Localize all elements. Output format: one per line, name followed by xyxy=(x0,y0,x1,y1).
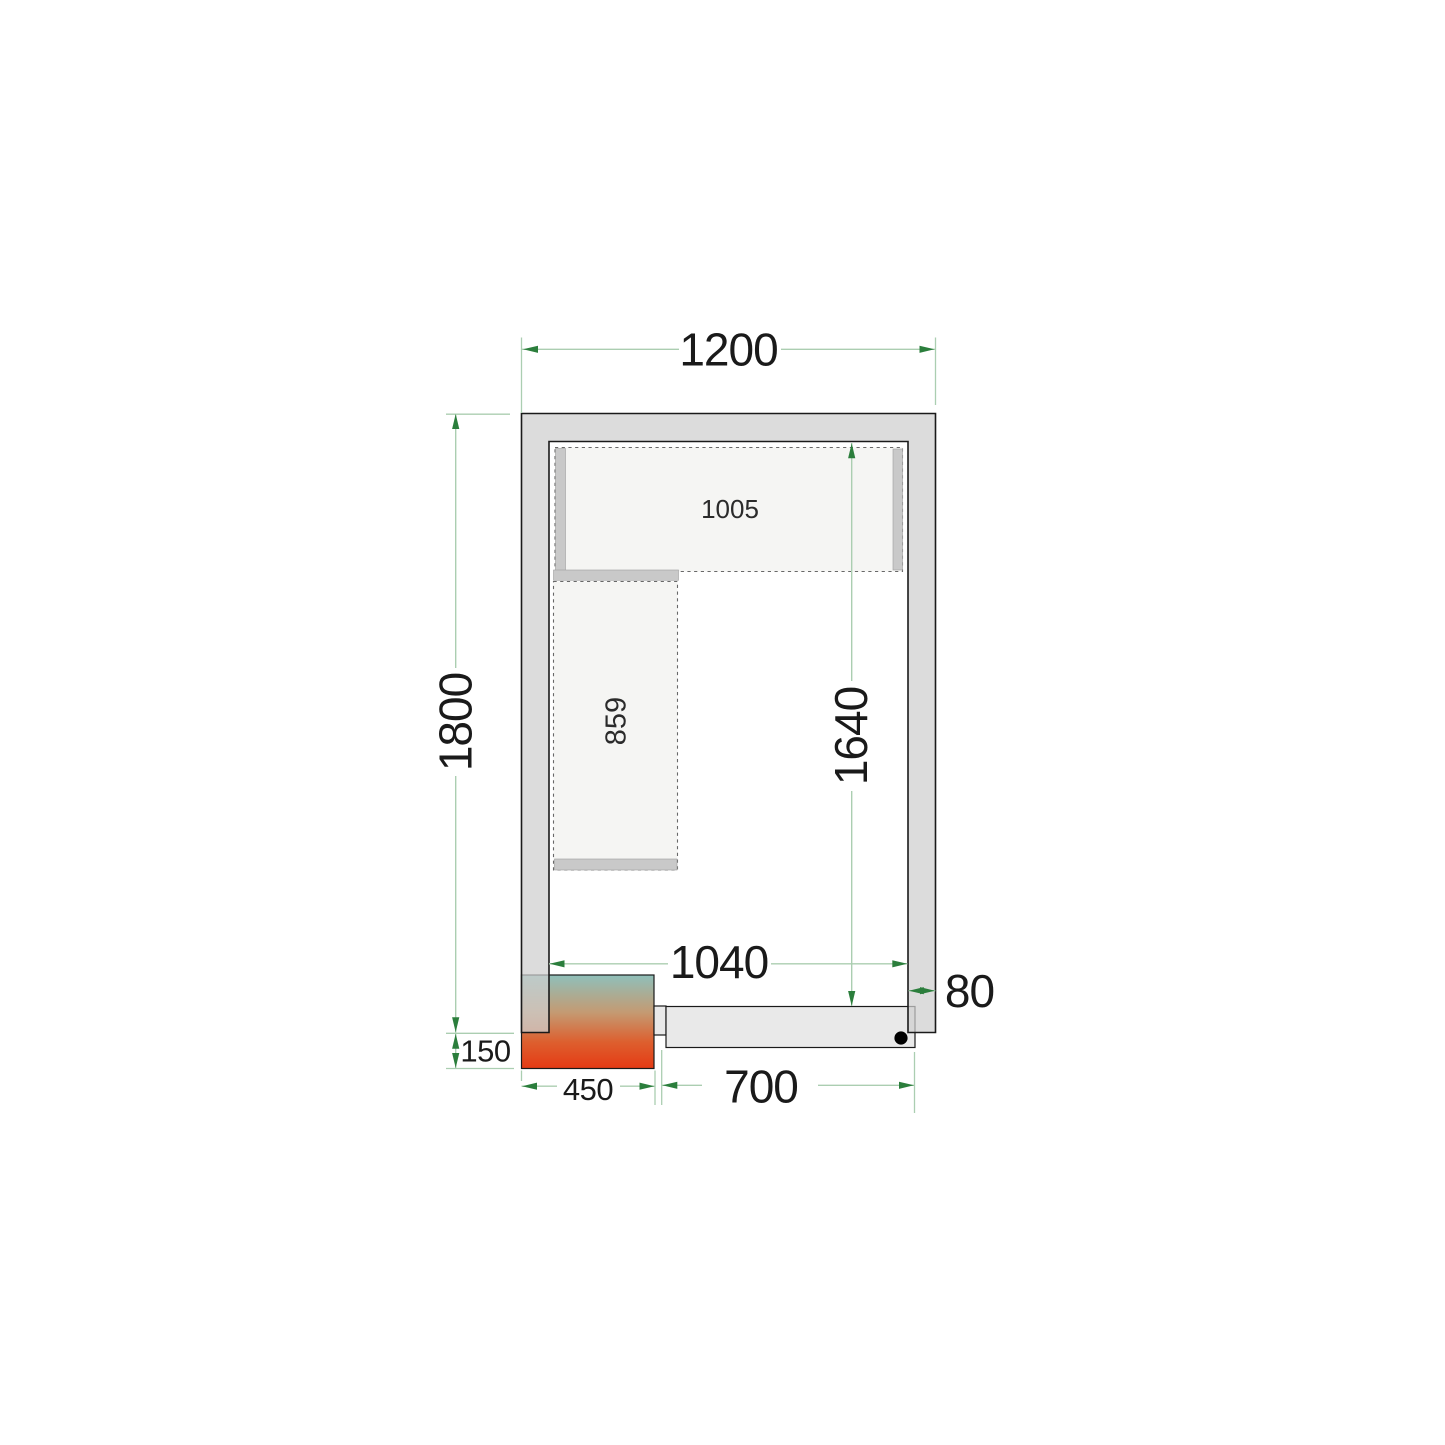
dimension-door-opening: 700 xyxy=(662,1050,915,1113)
top-shelf-length-label: 1005 xyxy=(701,494,759,524)
arrow-up-icon xyxy=(452,1034,459,1049)
door-hinge-dot xyxy=(894,1031,907,1044)
outer-depth-value: 1800 xyxy=(430,673,482,771)
arrow-up-icon xyxy=(452,414,459,429)
unit-width-value: 450 xyxy=(563,1072,613,1107)
arrow-down-icon xyxy=(452,1053,459,1068)
inner-width-value: 1040 xyxy=(670,936,768,988)
top-shelf-corner-bracket xyxy=(554,570,679,580)
door-opening-value: 700 xyxy=(724,1061,798,1113)
left-shelf: 859 xyxy=(554,582,678,871)
dimension-unit-protrusion: 150 xyxy=(446,1033,514,1068)
outer-width-value: 1200 xyxy=(679,324,777,376)
arrow-left-icon xyxy=(523,346,538,353)
arrow-left-icon xyxy=(662,1082,677,1089)
top-shelf-right-bracket xyxy=(893,449,903,570)
arrow-right-icon xyxy=(640,1083,655,1090)
arrow-right-icon xyxy=(899,1082,914,1089)
arrow-right-icon xyxy=(920,346,935,353)
left-shelf-bottom-bracket xyxy=(555,859,678,870)
dimension-outer-width: 1200 xyxy=(522,324,936,414)
dimension-outer-depth: 1800 xyxy=(430,414,511,1033)
dimension-unit-width: 450 xyxy=(522,1071,656,1108)
inner-depth-value: 1640 xyxy=(825,687,877,785)
cold-room-plan-page: 1005 859 1200 1800 xyxy=(0,0,1445,1445)
arrow-down-icon xyxy=(848,991,855,1006)
top-shelf-left-bracket xyxy=(556,449,566,571)
door-jamb xyxy=(654,1006,666,1035)
arrow-right-icon xyxy=(892,960,907,967)
cold-room-plan-drawing: 1005 859 1200 1800 xyxy=(0,0,1445,1445)
top-shelf: 1005 xyxy=(554,448,903,581)
door-assembly xyxy=(654,1006,915,1048)
arrow-down-icon xyxy=(452,1017,459,1032)
arrow-left-icon xyxy=(522,1083,537,1090)
left-shelf-length-label: 859 xyxy=(601,697,633,745)
unit-protrusion-value: 150 xyxy=(460,1034,510,1069)
arrow-left-icon xyxy=(550,960,565,967)
door-leaf xyxy=(666,1007,915,1048)
wall-thickness-value: 80 xyxy=(945,965,994,1017)
